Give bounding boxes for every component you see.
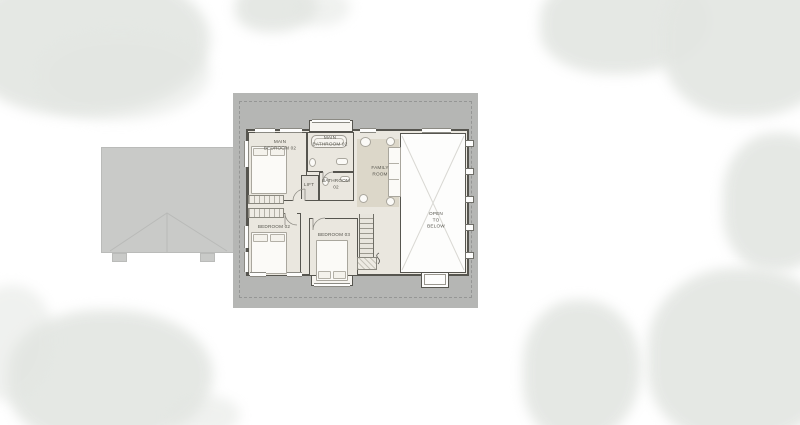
window	[244, 141, 249, 167]
tree-canopy	[723, 133, 800, 271]
stair-landing-hatch	[357, 257, 377, 270]
side-table	[386, 197, 395, 206]
bay-window-glass	[314, 283, 350, 287]
room-label-bathroom-02: BATHROOM 02	[319, 179, 353, 191]
tree-canopy	[35, 30, 210, 120]
floor-plan-canvas: MAIN BEDROOM 02 MAIN BATHROOM 02 LIFT BA…	[0, 0, 800, 425]
window	[244, 252, 249, 272]
sofa-cushion-line	[389, 179, 399, 180]
room-label-main-bedroom-02: MAIN BEDROOM 02	[257, 140, 304, 152]
garage-roof-pier	[200, 253, 215, 262]
room-label-bedroom-03: BEDROOM 03	[313, 233, 355, 239]
glazing-mullion	[465, 252, 474, 259]
tree-canopy	[648, 268, 800, 425]
garage-roof-pier	[112, 253, 127, 262]
tree-canopy	[663, 0, 800, 117]
sofa-cushion-line	[389, 163, 399, 164]
window	[280, 128, 302, 133]
door-opening	[323, 170, 333, 174]
washbasin	[336, 158, 348, 165]
garage-roof	[101, 147, 235, 253]
window	[287, 272, 302, 277]
room-label-open-to-below: OPEN TO BELOW	[421, 212, 451, 230]
door-opening	[313, 216, 325, 220]
bed-pillow	[318, 271, 331, 279]
room-label-family-room: FAMILY ROOM	[365, 166, 395, 178]
room-label-bedroom-02: BEDROOM 02	[253, 225, 295, 231]
room-label-lift: LIFT	[301, 183, 317, 189]
glazing-mullion	[465, 196, 474, 203]
tree-canopy	[168, 395, 240, 425]
window	[250, 272, 266, 277]
tree-canopy	[295, 0, 350, 26]
tree-canopy	[523, 300, 641, 425]
window	[360, 128, 376, 133]
pouf	[359, 194, 368, 203]
bay-window-glass	[312, 119, 350, 123]
bed-pillow	[333, 271, 346, 279]
bed-pillow	[270, 234, 285, 242]
room-label-main-bathroom-02: MAIN BATHROOM 02	[311, 136, 350, 148]
toilet	[309, 158, 316, 167]
open-to-below-void	[400, 133, 466, 273]
armchair	[360, 137, 371, 147]
wardrobe	[248, 208, 284, 218]
roof-window	[421, 271, 449, 288]
window	[422, 128, 451, 133]
glazing-mullion	[465, 168, 474, 175]
door-opening	[285, 211, 297, 215]
door-opening	[293, 199, 305, 203]
side-table	[386, 137, 395, 146]
glazing-mullion	[465, 224, 474, 231]
window	[255, 128, 275, 133]
glazing-mullion	[465, 140, 474, 147]
bed-pillow	[253, 234, 268, 242]
wardrobe	[248, 195, 284, 204]
window	[244, 226, 249, 248]
